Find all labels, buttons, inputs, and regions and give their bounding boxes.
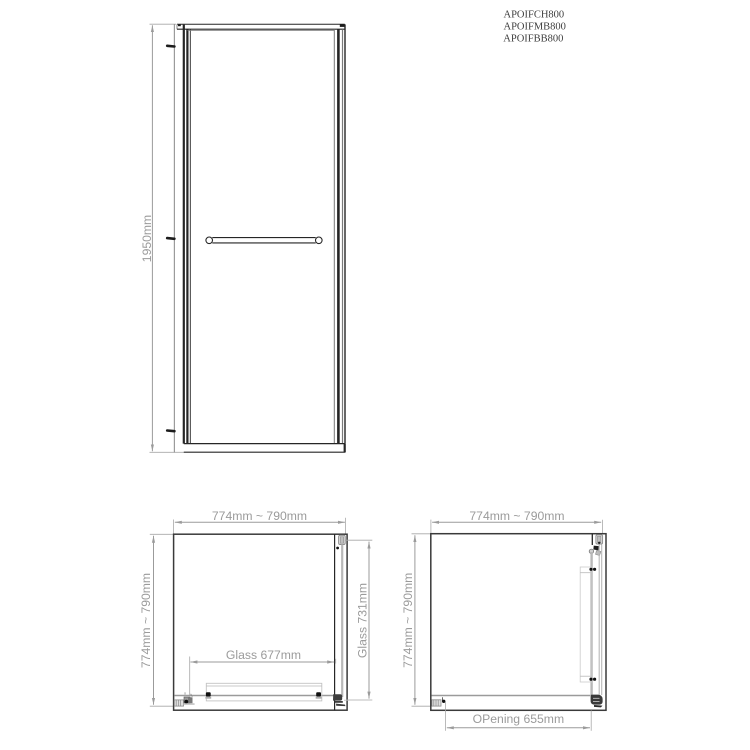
svg-text:774mm ~ 790mm: 774mm ~ 790mm (469, 509, 564, 523)
svg-text:774mm ~ 790mm: 774mm ~ 790mm (139, 573, 153, 668)
svg-text:774mm ~ 790mm: 774mm ~ 790mm (212, 509, 307, 523)
svg-text:APOIFCH800: APOIFCH800 (504, 9, 565, 20)
svg-text:APOIFMB800: APOIFMB800 (504, 22, 566, 33)
svg-text:Glass 677mm: Glass 677mm (226, 648, 301, 662)
svg-text:APOIFBB800: APOIFBB800 (503, 33, 563, 44)
svg-text:OPening 655mm: OPening 655mm (473, 712, 564, 726)
svg-text:774mm ~ 790mm: 774mm ~ 790mm (401, 573, 415, 668)
svg-text:Glass 731mm: Glass 731mm (356, 583, 370, 658)
svg-text:1950mm: 1950mm (140, 215, 154, 262)
